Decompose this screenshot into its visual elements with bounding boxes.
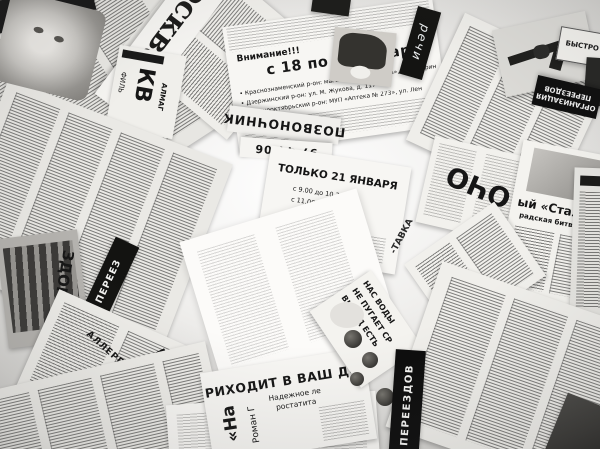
pereezdov-text: ПЕРЕЕЗДОВ	[399, 364, 416, 446]
revolver-cylinder	[532, 43, 551, 60]
headline-bar	[122, 49, 165, 64]
text-column	[197, 234, 289, 366]
filter-label: ФИЛЬ	[116, 71, 127, 93]
teapot-photo	[329, 27, 396, 87]
cup-photo	[330, 302, 364, 328]
headline-bar	[580, 176, 600, 187]
rechi-text: речи	[408, 23, 431, 63]
kv-headline: КВ	[128, 66, 158, 104]
newspaper-collage-photo: осква КВ ФИЛЬ АЛМАГ Внимание!!! с 18 по …	[0, 0, 600, 449]
text-column	[100, 363, 173, 449]
coin-photo	[362, 352, 378, 368]
face-shadow	[53, 35, 64, 43]
text-column	[38, 378, 111, 449]
bystro-text: БЫСТРО	[565, 40, 599, 53]
face-shadow	[33, 26, 44, 34]
roman-byline: Роман Г	[248, 405, 264, 444]
teapot-silhouette	[337, 32, 388, 71]
newspaper-scrap	[569, 167, 600, 318]
coin-photo	[344, 330, 362, 348]
text-paragraph	[319, 400, 370, 441]
na-quote-text: «На	[219, 404, 243, 443]
text-column	[576, 192, 600, 309]
coin-photo	[350, 372, 364, 386]
almag-label: АЛМАГ	[155, 82, 167, 111]
